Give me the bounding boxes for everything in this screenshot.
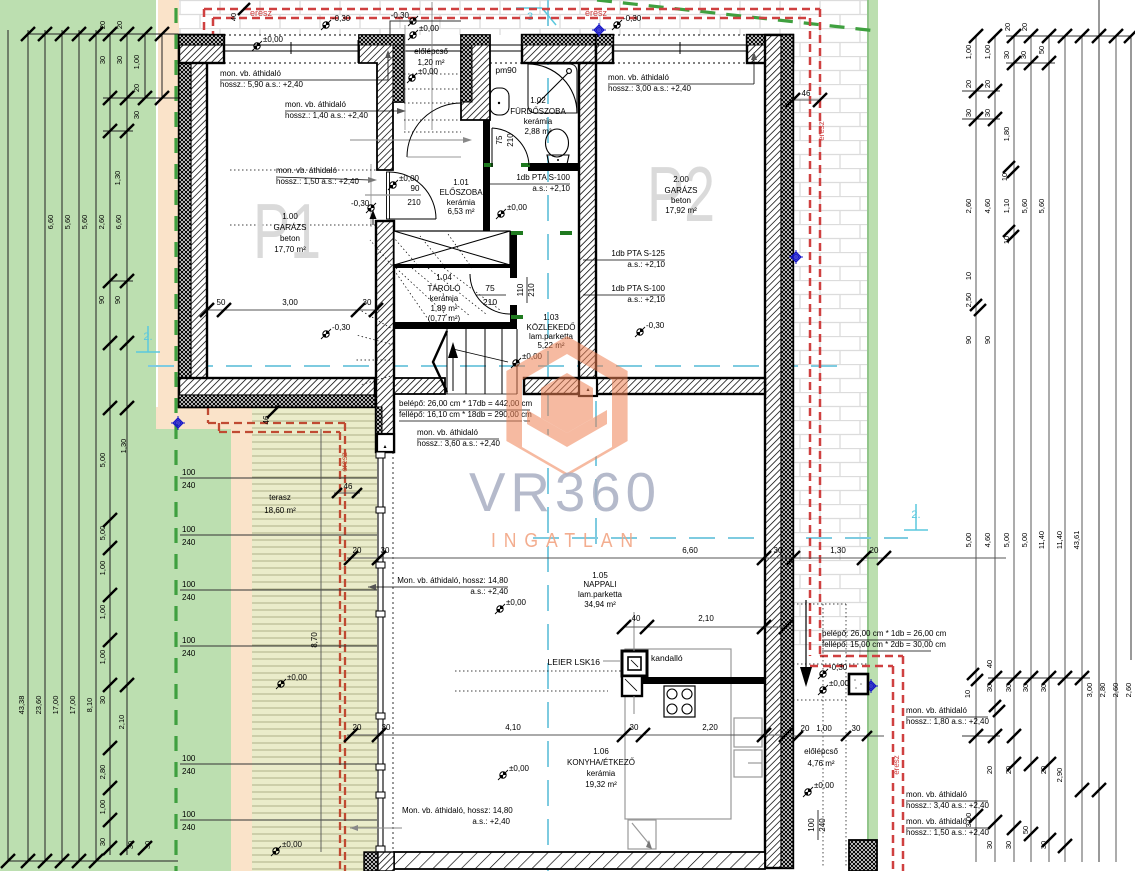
svg-text:1,30: 1,30 — [119, 439, 128, 454]
svg-text:FÜRDŐSZOBA: FÜRDŐSZOBA — [510, 107, 566, 116]
svg-text:20: 20 — [98, 21, 107, 29]
svg-text:20: 20 — [1020, 23, 1029, 31]
svg-text:±0,00: ±0,00 — [829, 679, 850, 688]
svg-text:20: 20 — [1003, 23, 1012, 31]
svg-text:240: 240 — [182, 823, 196, 832]
svg-text:mon. vb. áthidaló: mon. vb. áthidaló — [906, 817, 967, 826]
svg-text:5,60: 5,60 — [1020, 199, 1029, 214]
svg-text:43,61: 43,61 — [1072, 531, 1081, 550]
svg-text:-0,30: -0,30 — [646, 321, 665, 330]
svg-text:30: 30 — [1039, 841, 1048, 849]
svg-text:10: 10 — [1002, 236, 1011, 244]
svg-text:46: 46 — [344, 482, 353, 491]
svg-text:hossz.: 1,50 a.s.: +2,40: hossz.: 1,50 a.s.: +2,40 — [906, 828, 989, 837]
svg-text:46: 46 — [802, 89, 811, 98]
svg-text:1db PTA S-100: 1db PTA S-100 — [516, 173, 570, 182]
svg-text:5,00: 5,00 — [1020, 533, 1029, 548]
svg-text:210: 210 — [483, 297, 497, 307]
svg-text:5,00: 5,00 — [1002, 533, 1011, 548]
svg-text:18,60 m²: 18,60 m² — [264, 506, 296, 515]
svg-text:5,60: 5,60 — [80, 215, 89, 230]
svg-text:pm90: pm90 — [495, 65, 517, 75]
svg-text:6,60: 6,60 — [682, 546, 698, 555]
svg-text:30: 30 — [382, 723, 391, 732]
svg-text:±0,00: ±0,00 — [814, 781, 835, 790]
svg-text:2,90: 2,90 — [1055, 768, 1064, 783]
svg-text:eresz: eresz — [250, 8, 273, 18]
svg-text:▴: ▴ — [383, 444, 386, 450]
svg-text:20: 20 — [1039, 766, 1048, 774]
svg-text:hossz.: 3,40 a.s.: +2,40: hossz.: 3,40 a.s.: +2,40 — [906, 801, 989, 810]
svg-text:6,53 m²: 6,53 m² — [447, 207, 474, 216]
svg-text:-0,30: -0,30 — [332, 14, 351, 23]
svg-text:30: 30 — [1004, 841, 1013, 849]
svg-text:1.02: 1.02 — [530, 96, 546, 105]
svg-text:kerámia: kerámia — [447, 198, 476, 207]
svg-text:-0,30: -0,30 — [351, 199, 370, 208]
svg-text:240: 240 — [182, 767, 196, 776]
svg-text:30: 30 — [98, 56, 107, 64]
svg-text:2,60: 2,60 — [1111, 683, 1120, 698]
svg-text:kerámia: kerámia — [430, 294, 459, 303]
svg-text:100: 100 — [182, 636, 196, 645]
svg-text:23,60: 23,60 — [34, 696, 43, 715]
svg-text:30: 30 — [1021, 684, 1030, 692]
svg-text:30: 30 — [143, 841, 152, 849]
svg-text:-0,30: -0,30 — [391, 11, 410, 20]
svg-text:34,94 m²: 34,94 m² — [584, 600, 616, 609]
svg-text:előlépcső: előlépcső — [414, 47, 448, 56]
svg-text:2.: 2. — [143, 331, 152, 343]
svg-text:2,20: 2,20 — [702, 723, 718, 732]
svg-text:1,00: 1,00 — [98, 800, 107, 815]
svg-text:100: 100 — [182, 525, 196, 534]
svg-text:30: 30 — [381, 546, 390, 555]
svg-text:1,00: 1,00 — [98, 561, 107, 576]
svg-text:±0,00: ±0,00 — [419, 24, 440, 33]
svg-text:6,60: 6,60 — [46, 215, 55, 230]
svg-text:100: 100 — [807, 818, 816, 832]
svg-text:210: 210 — [407, 198, 421, 207]
svg-text:90: 90 — [983, 336, 992, 344]
svg-text:210: 210 — [506, 133, 515, 147]
svg-text:mon. vb. áthidaló: mon. vb. áthidaló — [906, 706, 967, 715]
svg-text:100: 100 — [182, 580, 196, 589]
svg-text:10: 10 — [964, 272, 973, 280]
svg-text:5,00: 5,00 — [98, 453, 107, 468]
svg-text:±0,00: ±0,00 — [282, 840, 303, 849]
svg-text:mon. vb. áthidaló: mon. vb. áthidaló — [417, 428, 478, 437]
svg-text:5,60: 5,60 — [1037, 199, 1046, 214]
svg-text:6,60: 6,60 — [114, 215, 123, 230]
svg-text:belépő: 26,00 cm * 1db = 26,00: belépő: 26,00 cm * 1db = 26,00 cm — [822, 629, 947, 638]
svg-text:30: 30 — [98, 838, 107, 846]
svg-text:90: 90 — [964, 336, 973, 344]
svg-text:beton: beton — [280, 234, 300, 243]
svg-text:a.s.: +2,10: a.s.: +2,10 — [627, 260, 665, 269]
svg-text:1,00: 1,00 — [964, 45, 973, 60]
svg-text:90: 90 — [97, 296, 106, 304]
svg-text:VR360: VR360 — [469, 461, 661, 523]
svg-text:kerámia: kerámia — [524, 117, 553, 126]
svg-text:TÁROLÓ: TÁROLÓ — [428, 284, 461, 293]
svg-text:1.01: 1.01 — [453, 178, 469, 187]
svg-text:30: 30 — [983, 109, 992, 117]
svg-text:75: 75 — [495, 135, 504, 144]
svg-text:40: 40 — [985, 660, 994, 668]
svg-text:fellépő: 15,00 cm * 2db = 30,0: fellépő: 15,00 cm * 2db = 30,00 cm — [822, 640, 946, 649]
svg-text:kandalló: kandalló — [651, 653, 683, 663]
svg-text:hossz.: 3,60 a.s.: +2,40: hossz.: 3,60 a.s.: +2,40 — [417, 439, 500, 448]
svg-text:30: 30 — [115, 56, 124, 64]
svg-text:±0,00: ±0,00 — [287, 673, 308, 682]
svg-text:-0,30: -0,30 — [623, 14, 642, 23]
svg-text:30: 30 — [964, 109, 973, 117]
svg-text:1,10: 1,10 — [1002, 199, 1011, 214]
svg-text:110: 110 — [516, 283, 525, 296]
svg-text:1.04: 1.04 — [436, 273, 452, 282]
svg-text:30: 30 — [630, 723, 639, 732]
svg-text:KONYHA/ÉTKEZŐ: KONYHA/ÉTKEZŐ — [567, 758, 635, 767]
svg-text:2,50: 2,50 — [964, 293, 973, 308]
svg-text:1,00: 1,00 — [816, 724, 832, 733]
svg-text:Mon. vb. áthidaló, hossz: 14,8: Mon. vb. áthidaló, hossz: 14,80 — [402, 806, 513, 815]
svg-text:8,70: 8,70 — [310, 632, 319, 648]
svg-text:mon. vb. áthidaló: mon. vb. áthidaló — [608, 73, 669, 82]
svg-text:±0,00: ±0,00 — [506, 598, 527, 607]
svg-text:(0,77 m²): (0,77 m²) — [428, 314, 461, 323]
svg-text:100: 100 — [182, 810, 196, 819]
svg-text:1.00: 1.00 — [282, 212, 298, 221]
svg-text:hossz.: 1,80 a.s.: +2,40: hossz.: 1,80 a.s.: +2,40 — [906, 717, 989, 726]
svg-text:1,89 m²: 1,89 m² — [430, 304, 457, 313]
svg-text:30: 30 — [1004, 684, 1013, 692]
svg-text:1.03: 1.03 — [543, 313, 559, 322]
svg-text:90: 90 — [113, 296, 122, 304]
svg-text:30: 30 — [98, 696, 107, 704]
svg-text:2,60: 2,60 — [964, 199, 973, 214]
svg-text:hossz.: 5,90 a.s.: +2,40: hossz.: 5,90 a.s.: +2,40 — [220, 80, 303, 89]
svg-text:10: 10 — [1000, 173, 1009, 181]
svg-text:2,10: 2,10 — [117, 715, 126, 730]
svg-text:3,00: 3,00 — [1085, 683, 1094, 698]
svg-text:-0,30: -0,30 — [332, 323, 351, 332]
svg-text:20: 20 — [353, 546, 362, 555]
svg-text:5,60: 5,60 — [63, 215, 72, 230]
svg-text:előlépcső: előlépcső — [804, 747, 838, 756]
svg-text:1,00: 1,00 — [98, 650, 107, 665]
svg-text:hossz.: 3,00 a.s.: +2,40: hossz.: 3,00 a.s.: +2,40 — [608, 84, 691, 93]
svg-text:19,32 m²: 19,32 m² — [585, 780, 617, 789]
svg-text:30: 30 — [1019, 51, 1028, 59]
svg-text:GARÁZS: GARÁZS — [665, 186, 698, 195]
svg-text:8,10: 8,10 — [85, 698, 94, 713]
svg-text:±0,00: ±0,00 — [263, 35, 284, 44]
svg-text:4,60: 4,60 — [983, 533, 992, 548]
svg-text:1,20 m²: 1,20 m² — [417, 58, 444, 67]
svg-text:40: 40 — [229, 13, 238, 21]
svg-text:INGATLAN: INGATLAN — [491, 530, 641, 552]
svg-text:2,60: 2,60 — [97, 215, 106, 230]
svg-text:mon. vb. áthidaló: mon. vb. áthidaló — [276, 166, 337, 175]
svg-text:20: 20 — [983, 80, 992, 88]
svg-text:2,10: 2,10 — [698, 614, 714, 623]
svg-text:1db PTA S-100: 1db PTA S-100 — [611, 284, 665, 293]
svg-text:eresz: eresz — [585, 8, 608, 18]
svg-text:240: 240 — [182, 538, 196, 547]
svg-text:30: 30 — [985, 841, 994, 849]
svg-text:17,92 m²: 17,92 m² — [665, 206, 697, 215]
svg-text:a.s.: +2,10: a.s.: +2,10 — [627, 295, 665, 304]
svg-text:lam.parketta: lam.parketta — [578, 590, 623, 599]
svg-text:1.05: 1.05 — [592, 571, 608, 580]
svg-text:43,38: 43,38 — [17, 696, 26, 715]
svg-text:4,10: 4,10 — [505, 723, 521, 732]
svg-text:30: 30 — [1002, 51, 1011, 59]
svg-text:±0,00: ±0,00 — [507, 203, 528, 212]
svg-text:5,00: 5,00 — [964, 533, 973, 548]
svg-text:1,00: 1,00 — [98, 605, 107, 620]
svg-text:30: 30 — [774, 546, 783, 555]
svg-text:1,30: 1,30 — [830, 546, 846, 555]
svg-text:2.: 2. — [911, 509, 920, 521]
svg-text:mon. vb. áthidaló: mon. vb. áthidaló — [220, 69, 281, 78]
svg-text:20: 20 — [870, 546, 879, 555]
svg-text:20: 20 — [115, 21, 124, 29]
svg-text:±0,00: ±0,00 — [509, 764, 530, 773]
svg-text:11,40: 11,40 — [1037, 531, 1046, 549]
svg-text:46: 46 — [262, 415, 271, 424]
svg-text:75: 75 — [485, 283, 495, 293]
svg-text:mon. vb. áthidaló: mon. vb. áthidaló — [906, 790, 967, 799]
svg-text:30: 30 — [126, 841, 135, 849]
svg-text:kerámia: kerámia — [587, 769, 616, 778]
svg-text:40: 40 — [632, 614, 641, 623]
svg-text:terasz: terasz — [269, 493, 291, 502]
svg-text:eresz: eresz — [340, 452, 349, 472]
svg-text:30: 30 — [363, 298, 372, 307]
svg-text:20: 20 — [964, 80, 973, 88]
svg-text:±0,00: ±0,00 — [418, 67, 439, 76]
svg-text:4,76 m²: 4,76 m² — [807, 759, 834, 768]
svg-text:240: 240 — [182, 649, 196, 658]
svg-text:a.s.: +2,40: a.s.: +2,40 — [470, 587, 508, 596]
svg-text:50: 50 — [217, 298, 226, 307]
svg-text:3,00: 3,00 — [282, 298, 298, 307]
svg-text:30: 30 — [985, 684, 994, 692]
svg-text:240: 240 — [818, 818, 827, 832]
svg-text:20: 20 — [132, 84, 141, 92]
svg-text:1,00: 1,00 — [132, 55, 141, 70]
svg-text:2,88 m²: 2,88 m² — [524, 127, 551, 136]
svg-text:100: 100 — [182, 468, 196, 477]
svg-text:2,80: 2,80 — [98, 765, 107, 780]
svg-text:20: 20 — [1004, 766, 1013, 774]
svg-text:17,00: 17,00 — [51, 696, 60, 715]
svg-text:20: 20 — [353, 723, 362, 732]
svg-text:30: 30 — [132, 111, 141, 119]
svg-text:30: 30 — [1039, 684, 1048, 692]
svg-text:17,70 m²: 17,70 m² — [274, 245, 306, 254]
svg-text:eresz: eresz — [892, 755, 901, 775]
svg-text:4,60: 4,60 — [983, 199, 992, 214]
svg-text:240: 240 — [182, 481, 196, 490]
svg-text:2.00: 2.00 — [673, 175, 689, 184]
svg-text:a.s.: +2,10: a.s.: +2,10 — [532, 184, 570, 193]
svg-text:20: 20 — [985, 766, 994, 774]
svg-text:NAPPALI: NAPPALI — [583, 580, 616, 589]
svg-text:GARÁZS: GARÁZS — [274, 223, 307, 232]
svg-text:hossz.: 1,40 a.s.: +2,40: hossz.: 1,40 a.s.: +2,40 — [285, 111, 368, 120]
svg-text:1,30: 1,30 — [113, 171, 122, 186]
svg-text:17,00: 17,00 — [68, 696, 77, 715]
svg-text:1,00: 1,00 — [983, 45, 992, 60]
svg-text:90: 90 — [411, 184, 420, 193]
svg-text:1,80: 1,80 — [1002, 127, 1011, 142]
svg-text:2,60: 2,60 — [1124, 683, 1133, 698]
svg-text:2,80: 2,80 — [1098, 683, 1107, 698]
svg-text:5,00: 5,00 — [98, 526, 107, 541]
svg-text:1db PTA S-125: 1db PTA S-125 — [611, 249, 665, 258]
svg-text:1.06: 1.06 — [593, 747, 609, 756]
svg-text:beton: beton — [671, 196, 691, 205]
svg-text:eresz: eresz — [817, 121, 826, 141]
svg-text:20: 20 — [801, 724, 810, 733]
svg-text:50: 50 — [1037, 46, 1046, 54]
svg-text:30: 30 — [852, 724, 861, 733]
svg-text:KÖZLEKEDŐ: KÖZLEKEDŐ — [527, 323, 576, 332]
svg-text:mon. vb. áthidaló: mon. vb. áthidaló — [285, 100, 346, 109]
svg-text:10: 10 — [963, 690, 972, 698]
svg-text:240: 240 — [182, 593, 196, 602]
svg-text:-0,30: -0,30 — [829, 663, 848, 672]
svg-text:210: 210 — [527, 283, 536, 297]
svg-text:ELŐSZOBA: ELŐSZOBA — [439, 188, 483, 197]
svg-text:100: 100 — [182, 754, 196, 763]
svg-text:±0,00: ±0,00 — [399, 174, 420, 183]
svg-text:LEIER LSK16: LEIER LSK16 — [548, 657, 601, 667]
svg-text:a.s.: +2,40: a.s.: +2,40 — [472, 817, 510, 826]
svg-text:Mon. vb. áthidaló, hossz: 14,8: Mon. vb. áthidaló, hossz: 14,80 — [397, 576, 508, 585]
svg-text:11,40: 11,40 — [1055, 531, 1064, 549]
svg-text:50: 50 — [1021, 826, 1030, 834]
